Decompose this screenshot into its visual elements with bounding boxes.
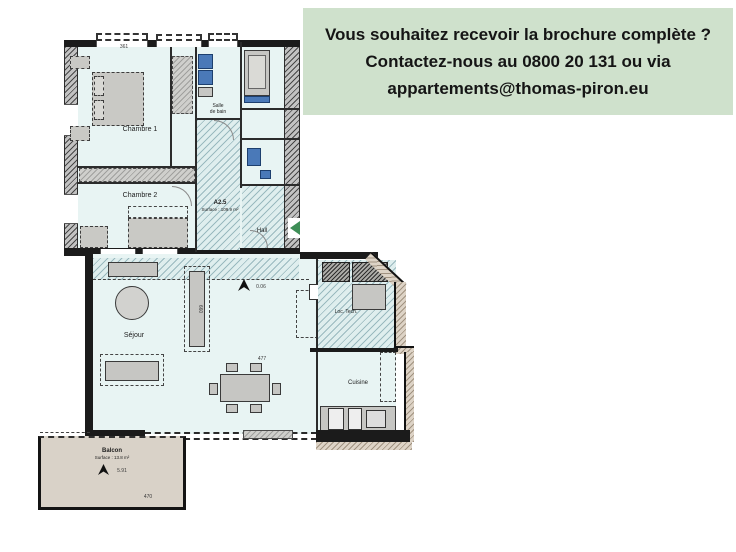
- sofa: [105, 361, 159, 381]
- loctech-equipment-1: [322, 262, 350, 282]
- room-label-chambre1: Chambre 1: [110, 126, 170, 134]
- exterior-wall-right-mid: [394, 282, 406, 348]
- partition-bath-right: [240, 42, 242, 188]
- wall-bottom-right: [316, 430, 410, 442]
- window-sill-panel: [243, 430, 293, 439]
- dimension-table: 477: [252, 356, 272, 362]
- low-cabinet: [108, 262, 158, 277]
- chair-right: [272, 383, 281, 395]
- balcon-level-label: 5.91: [112, 468, 132, 474]
- dimension-cabinet: 660: [197, 299, 203, 319]
- chair-bottom-2: [250, 404, 262, 413]
- pillow-1: [94, 76, 104, 96]
- room-label-sejour: Séjour: [116, 332, 152, 340]
- cuisine-duct-hatch: [380, 352, 396, 402]
- brochure-banner: Vous souhaitez recevoir la brochure comp…: [303, 8, 733, 115]
- banner-line-2: Contactez-nous au 0800 20 131 ou via: [303, 48, 733, 75]
- room-label-balcon: Balcon: [82, 448, 142, 455]
- stove-icon: [328, 408, 344, 430]
- partition-wc-top: [240, 138, 300, 140]
- chair-top-2: [250, 363, 262, 372]
- kitchen-sink-icon: [348, 408, 362, 430]
- oven-icon: [366, 410, 386, 428]
- room-label-chambre2: Chambre 2: [110, 192, 170, 200]
- level-marker-icon: [238, 278, 250, 292]
- unit-surface-label: Surface : 109.9 m²: [194, 208, 246, 213]
- balcon-surface-label: Surface : 13.8 m²: [78, 456, 146, 461]
- desk-chambre2: [128, 218, 188, 248]
- toilet-icon: [247, 148, 261, 166]
- balcony-edge-dashed: [40, 432, 90, 434]
- balcony-level-marker-icon: [98, 463, 109, 476]
- side-table-chambre2: [80, 226, 108, 248]
- room-label-hall: Hall: [244, 228, 280, 235]
- wc-basin-icon: [260, 170, 271, 179]
- wall-sejour-left: [85, 252, 93, 438]
- room-label-cuisine: Cuisine: [336, 380, 380, 387]
- sejour-level-label: 0.06: [252, 284, 270, 290]
- bath-shelf: [198, 87, 213, 97]
- window-top-3: [208, 40, 238, 47]
- wardrobe-middle: [172, 56, 193, 114]
- dining-table: [220, 374, 270, 402]
- window-box-1: [96, 33, 148, 41]
- partition-bathtub-bottom: [240, 108, 300, 110]
- desk-outline-chambre2: [128, 206, 188, 218]
- dimension-balcon: 470: [136, 494, 160, 500]
- unit-code-label: A2.5: [200, 200, 240, 207]
- chair-left: [209, 383, 218, 395]
- room-label-loc-tech: Loc. Tech.: [324, 310, 368, 316]
- dimension-top: 361: [112, 44, 136, 50]
- banner-email: appartements@thomas-piron.eu: [303, 75, 733, 102]
- window-top-2: [156, 40, 202, 47]
- window-box-2: [156, 34, 202, 41]
- pillow-2: [94, 100, 104, 120]
- exterior-band-bottom: [316, 442, 412, 450]
- exterior-wall-right-low: [404, 352, 414, 442]
- banner-line-1: Vous souhaitez recevoir la brochure comp…: [303, 21, 733, 48]
- nightstand-1: [70, 56, 90, 69]
- nightstand-2: [70, 126, 90, 141]
- washer-icon: [198, 54, 213, 69]
- partition-dressing-bottom: [78, 182, 197, 184]
- entrance-arrow-icon: [290, 221, 300, 235]
- sink-icon: [198, 70, 213, 85]
- window-box-3: [208, 33, 238, 41]
- dressing-cabinet: [79, 168, 195, 182]
- loctech-equipment-3: [352, 284, 386, 310]
- chair-bottom-1: [226, 404, 238, 413]
- window-chambre2-left: [64, 194, 78, 224]
- chair-top-1: [226, 363, 238, 372]
- round-table: [115, 286, 149, 320]
- bathtub-inner: [248, 55, 266, 89]
- bathtub-faucet-icon: [244, 96, 270, 103]
- room-label-salle-de-bain-2: de bain: [198, 110, 238, 116]
